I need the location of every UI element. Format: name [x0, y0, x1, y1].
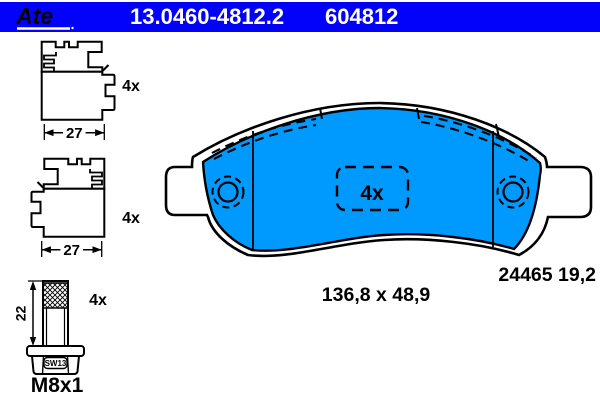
bolt-thread-label: M8x1 [31, 374, 84, 397]
bolt-drawing: SW13 22 4x M8x1 [13, 281, 108, 397]
clip-bottom-drawing: 4x 27 [32, 159, 141, 259]
clip-top-dimension: 27 [44, 124, 104, 142]
bolt-length-dimension: 22 [13, 281, 43, 346]
clip-top-width-label: 27 [66, 125, 83, 142]
clip-bottom-width-label: 27 [63, 242, 80, 259]
bolt-qty: 4x [89, 292, 107, 309]
bolt-thread-section [43, 283, 68, 308]
bolt-length-label: 22 [13, 306, 29, 322]
clip-top-qty: 4x [122, 78, 140, 95]
clip-bottom-dimension: 27 [42, 241, 102, 259]
bolt-flange [27, 346, 84, 356]
clip-bottom-qty: 4x [122, 210, 140, 227]
technical-drawing: 4x 27 4x 27 [0, 0, 600, 400]
page: Ate 13.0460-4812.2 604812 4x [0, 0, 600, 400]
wrench-size-label: SW13 [45, 359, 67, 368]
clip-top-drawing: 4x 27 [42, 42, 140, 142]
pad-size-label: 136,8 x 48,9 [322, 284, 431, 306]
pad-drawing-ref: 24465 19,2 [498, 264, 596, 286]
brake-pad-drawing: 4x 136,8 x 48,9 24465 19,2 [166, 103, 596, 306]
pad-qty: 4x [360, 182, 384, 205]
